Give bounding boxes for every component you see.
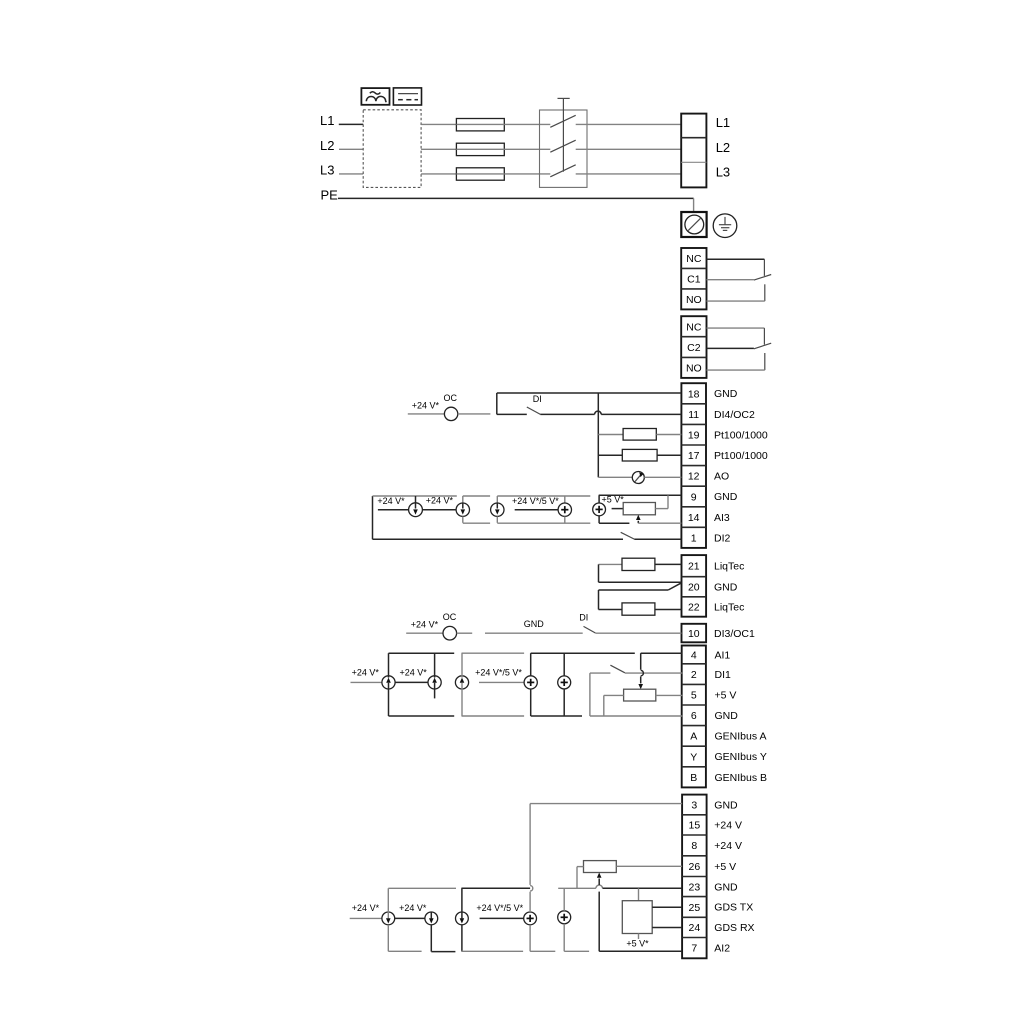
svg-text:+24 V*/5 V*: +24 V*/5 V* [512,496,559,506]
svg-text:B: B [690,772,697,784]
svg-text:GND: GND [714,491,738,503]
svg-text:17: 17 [688,450,700,462]
svg-text:10: 10 [688,628,700,640]
svg-text:23: 23 [689,881,701,893]
svg-text:L3: L3 [716,164,730,179]
svg-text:GND: GND [714,881,738,893]
svg-text:GENIbus Y: GENIbus Y [715,751,767,763]
svg-text:+24 V*: +24 V* [377,496,405,506]
svg-text:OC: OC [443,393,457,403]
svg-text:DI4/OC2: DI4/OC2 [714,409,755,421]
svg-text:DI: DI [533,394,542,404]
svg-text:LiqTec: LiqTec [714,601,744,613]
svg-text:AO: AO [714,471,729,483]
svg-text:+24 V*/5 V*: +24 V*/5 V* [475,668,522,678]
svg-text:L2: L2 [320,138,334,153]
svg-text:24: 24 [689,922,701,934]
svg-text:26: 26 [689,861,701,873]
svg-text:3: 3 [691,800,697,812]
svg-text:L2: L2 [716,140,730,155]
svg-text:+24 V*/5 V*: +24 V*/5 V* [476,903,523,913]
svg-text:GDS RX: GDS RX [714,922,754,934]
svg-text:GENIbus A: GENIbus A [715,731,767,743]
svg-text:8: 8 [691,840,697,852]
svg-text:+24 V*: +24 V* [399,903,427,913]
svg-text:14: 14 [688,512,700,524]
svg-text:AI3: AI3 [714,512,730,524]
svg-text:DI2: DI2 [714,532,731,544]
svg-text:GND: GND [714,388,738,400]
svg-text:+24 V: +24 V [714,820,742,832]
svg-text:NO: NO [686,362,702,374]
svg-text:+5 V*: +5 V* [626,938,649,948]
svg-text:6: 6 [691,710,697,722]
svg-text:+24 V*: +24 V* [352,903,380,913]
svg-text:Pt100/1000: Pt100/1000 [714,450,768,462]
svg-text:11: 11 [688,409,699,421]
svg-text:Pt100/1000: Pt100/1000 [714,429,768,441]
svg-text:OC: OC [443,612,457,622]
svg-text:L1: L1 [320,113,334,128]
svg-text:+5 V*: +5 V* [602,495,625,505]
svg-text:+24 V*: +24 V* [426,495,454,505]
svg-text:PE: PE [321,188,339,203]
svg-text:+24 V*: +24 V* [411,620,439,630]
svg-text:DI1: DI1 [715,669,732,681]
svg-text:22: 22 [688,602,700,614]
svg-text:+24 V*: +24 V* [352,668,380,678]
svg-text:12: 12 [688,471,700,483]
svg-text:GND: GND [714,799,738,811]
svg-text:NO: NO [686,294,702,306]
svg-text:19: 19 [688,430,700,442]
svg-text:2: 2 [691,669,697,681]
svg-text:GDS TX: GDS TX [714,902,753,914]
svg-text:GND: GND [714,581,738,593]
svg-text:+24 V*: +24 V* [400,668,428,678]
svg-text:GENIbus B: GENIbus B [715,772,768,784]
svg-text:25: 25 [689,902,701,914]
svg-text:+24 V*: +24 V* [412,400,440,410]
svg-text:20: 20 [688,582,700,594]
svg-text:GND: GND [715,710,739,722]
svg-text:L1: L1 [716,115,730,130]
svg-text:C1: C1 [687,273,701,285]
svg-text:1: 1 [691,532,697,544]
svg-text:21: 21 [688,561,700,573]
svg-text:+5 V: +5 V [714,861,736,873]
svg-text:LiqTec: LiqTec [714,561,744,573]
svg-text:+5 V: +5 V [715,689,737,701]
svg-text:+24 V: +24 V [714,840,742,852]
svg-text:15: 15 [689,820,701,832]
svg-text:NC: NC [686,253,702,265]
svg-text:C2: C2 [687,342,701,354]
svg-text:9: 9 [691,491,697,503]
svg-text:DI: DI [579,613,588,623]
svg-text:A: A [690,731,697,743]
svg-text:L3: L3 [320,163,334,178]
svg-text:7: 7 [691,943,697,955]
svg-text:DI3/OC1: DI3/OC1 [714,628,755,640]
svg-text:AI1: AI1 [715,649,731,661]
svg-text:18: 18 [688,388,700,400]
svg-text:AI2: AI2 [714,943,730,955]
svg-text:Y: Y [690,751,697,763]
svg-text:4: 4 [691,649,697,661]
svg-text:NC: NC [686,321,702,333]
svg-text:GND: GND [524,619,545,629]
svg-text:5: 5 [691,690,697,702]
